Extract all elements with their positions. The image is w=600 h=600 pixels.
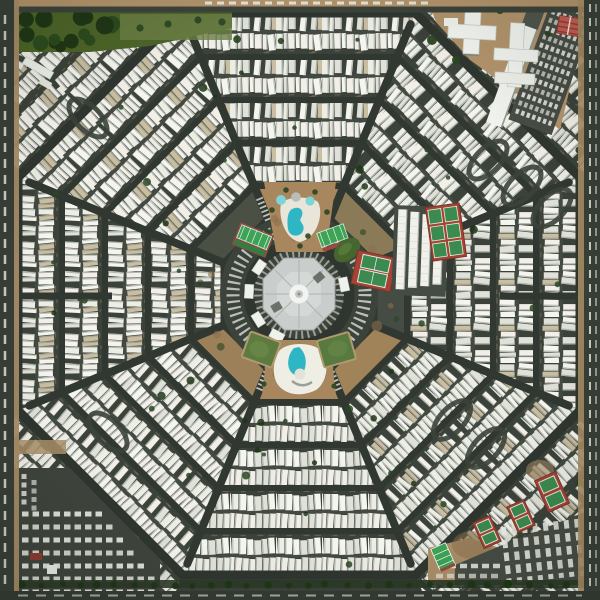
aerial-photo-trailer-park <box>0 0 600 600</box>
satellite-image-canvas <box>0 0 600 600</box>
aerial-photo-trailer-park <box>0 0 600 600</box>
